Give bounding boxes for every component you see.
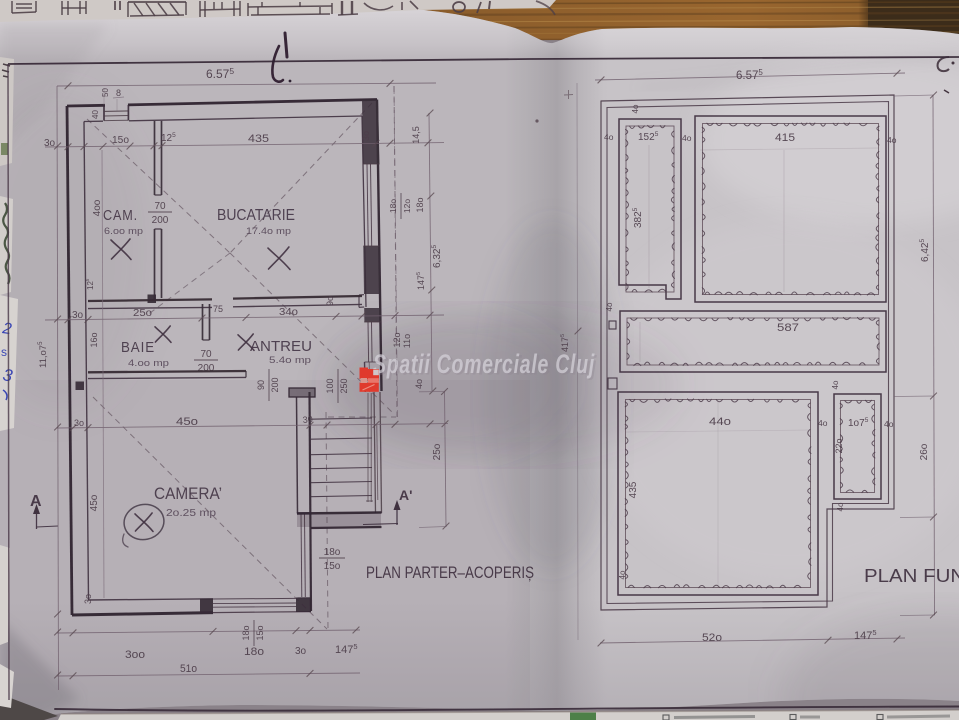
- svg-text:4o: 4o: [831, 380, 840, 389]
- svg-text:25o: 25o: [432, 443, 443, 460]
- svg-text:BUCATARIE: BUCATARIE: [217, 207, 295, 224]
- svg-text:90: 90: [256, 380, 266, 390]
- svg-text:45o: 45o: [89, 494, 100, 511]
- svg-text:3o: 3o: [44, 138, 56, 149]
- svg-text:4o: 4o: [631, 104, 640, 113]
- svg-text:ANTREU: ANTREU: [250, 338, 312, 355]
- svg-text:15o: 15o: [324, 561, 341, 572]
- svg-text:18o: 18o: [388, 199, 398, 213]
- svg-text:40: 40: [91, 110, 100, 119]
- svg-text:4o: 4o: [836, 502, 845, 511]
- svg-text:435: 435: [628, 481, 639, 498]
- svg-text:4.oo mp: 4.oo mp: [128, 358, 169, 369]
- svg-text:22o: 22o: [834, 438, 844, 453]
- svg-text:12o: 12o: [402, 199, 412, 213]
- svg-text:3oo: 3oo: [125, 649, 145, 661]
- svg-text:75: 75: [213, 304, 223, 314]
- svg-text:45o: 45o: [176, 416, 198, 428]
- svg-text:14,5: 14,5: [411, 126, 421, 144]
- svg-text:200: 200: [270, 377, 280, 392]
- svg-text:587: 587: [777, 322, 799, 334]
- svg-text:3o: 3o: [295, 646, 307, 657]
- svg-text:52o: 52o: [702, 632, 722, 644]
- svg-text:5.4o mp: 5.4o mp: [269, 355, 311, 366]
- svg-text:50: 50: [101, 88, 110, 97]
- svg-text:11,o75: 11,o75: [38, 341, 49, 368]
- svg-text:4o: 4o: [618, 570, 627, 579]
- svg-text:4o: 4o: [605, 302, 614, 311]
- svg-text:18o: 18o: [415, 197, 425, 212]
- svg-text:3o: 3o: [83, 594, 93, 604]
- svg-text:8: 8: [116, 88, 121, 98]
- svg-text:17.4o mp: 17.4o mp: [246, 226, 291, 237]
- svg-text:3o: 3o: [361, 131, 371, 141]
- svg-text:BAIE: BAIE: [121, 339, 155, 356]
- svg-text:9o: 9o: [325, 296, 335, 306]
- svg-text:CAMERA’: CAMERA’: [154, 485, 222, 503]
- svg-text:18o: 18o: [241, 625, 251, 640]
- svg-text:4o: 4o: [887, 135, 897, 145]
- svg-text:44o: 44o: [709, 416, 731, 428]
- svg-text:26o: 26o: [919, 443, 930, 460]
- svg-text:4o: 4o: [604, 132, 614, 142]
- svg-text:6.oo mp: 6.oo mp: [104, 226, 143, 237]
- svg-text:Spatii Comerciale Cluj: Spatii Comerciale Cluj: [373, 349, 595, 379]
- svg-text:15o: 15o: [255, 625, 265, 640]
- svg-text:3o: 3o: [72, 310, 84, 321]
- svg-text:4oo: 4oo: [92, 199, 103, 216]
- svg-text:100: 100: [325, 378, 335, 393]
- svg-text:435: 435: [248, 133, 269, 145]
- svg-text:11o: 11o: [402, 334, 412, 348]
- svg-text:3o: 3o: [74, 418, 84, 428]
- svg-text:A': A': [399, 487, 412, 503]
- svg-text:15o: 15o: [112, 135, 129, 146]
- svg-text:4o: 4o: [682, 133, 692, 143]
- svg-text:70: 70: [154, 201, 166, 212]
- svg-text:4o: 4o: [884, 419, 894, 429]
- svg-text:25o: 25o: [133, 308, 152, 319]
- svg-text:12o: 12o: [392, 332, 402, 347]
- svg-text:PLAN FUNDATII: PLAN FUNDATII: [864, 566, 959, 586]
- svg-text:51o: 51o: [180, 663, 197, 675]
- svg-text:16o: 16o: [89, 332, 99, 347]
- svg-text:4o: 4o: [818, 418, 828, 428]
- svg-text:250: 250: [339, 378, 349, 393]
- svg-text:PLAN PARTER–ACOPERIȘ: PLAN PARTER–ACOPERIȘ: [366, 564, 534, 582]
- svg-text:18o: 18o: [324, 547, 341, 558]
- svg-text:CAM.: CAM.: [103, 207, 138, 224]
- svg-text:415: 415: [775, 132, 795, 144]
- svg-text:70: 70: [200, 349, 212, 360]
- svg-text:18o: 18o: [244, 646, 264, 658]
- svg-text:2o.25 mp: 2o.25 mp: [166, 508, 217, 519]
- svg-text:34o: 34o: [279, 307, 298, 318]
- svg-text:s: s: [1, 345, 7, 359]
- svg-text:200: 200: [152, 215, 169, 226]
